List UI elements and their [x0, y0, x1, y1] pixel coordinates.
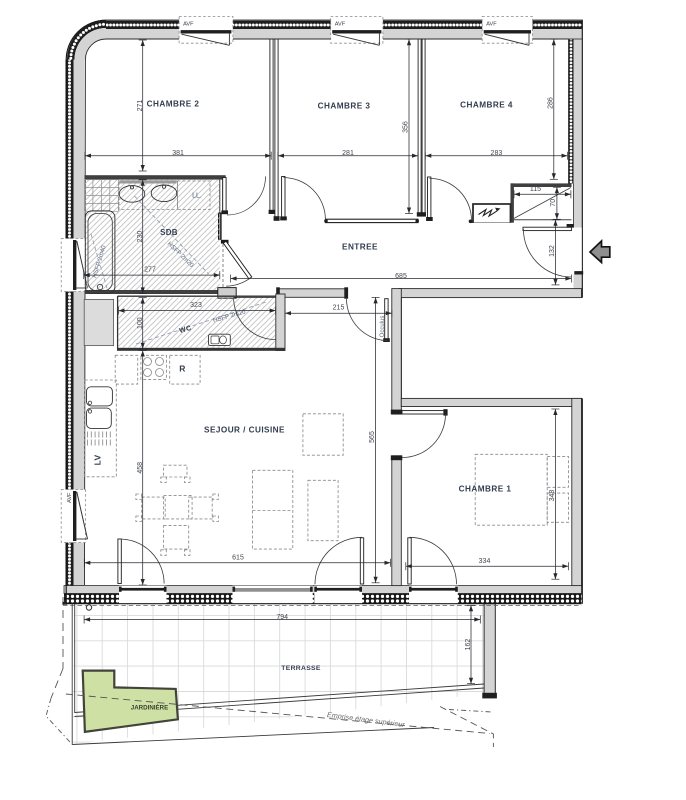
svg-text:LV: LV [93, 455, 103, 466]
svg-text:565: 565 [369, 431, 376, 443]
svg-text:334: 334 [479, 558, 491, 565]
svg-text:AVF: AVF [67, 492, 73, 503]
svg-text:CHAMBRE 1: CHAMBRE 1 [459, 485, 512, 494]
svg-text:271: 271 [137, 100, 144, 112]
svg-text:458: 458 [137, 462, 144, 474]
svg-text:132: 132 [549, 245, 556, 257]
svg-text:615: 615 [232, 554, 244, 561]
svg-text:AVF: AVF [183, 22, 194, 28]
svg-text:Occulus: Occulus [380, 316, 386, 338]
svg-text:283: 283 [491, 150, 503, 157]
svg-text:R: R [179, 364, 185, 374]
svg-text:115: 115 [530, 186, 541, 193]
svg-text:ENTREE: ENTREE [342, 243, 378, 252]
svg-text:LL.: LL. [192, 193, 202, 200]
svg-text:CHAMBRE 2: CHAMBRE 2 [147, 100, 200, 109]
svg-text:348: 348 [549, 490, 556, 502]
svg-text:CHAMBRE 4: CHAMBRE 4 [460, 101, 513, 110]
svg-text:AVF: AVF [486, 22, 497, 28]
svg-text:SEJOUR / CUISINE: SEJOUR / CUISINE [204, 426, 285, 435]
svg-text:70: 70 [550, 199, 557, 207]
svg-text:685: 685 [395, 273, 407, 280]
svg-text:230: 230 [137, 231, 144, 243]
svg-text:794: 794 [276, 614, 288, 621]
svg-text:381: 381 [172, 150, 184, 157]
svg-text:281: 281 [342, 150, 354, 157]
svg-text:215: 215 [333, 304, 345, 311]
svg-text:277: 277 [144, 266, 156, 273]
svg-text:JARDINIÈRE: JARDINIÈRE [131, 704, 168, 712]
svg-text:286: 286 [548, 97, 555, 109]
svg-text:323: 323 [190, 302, 202, 309]
svg-text:CHAMBRE 3: CHAMBRE 3 [318, 102, 371, 111]
svg-text:162: 162 [465, 639, 472, 651]
svg-text:100: 100 [137, 317, 144, 329]
svg-text:TERRASSE: TERRASSE [281, 665, 321, 672]
svg-text:356: 356 [403, 121, 410, 133]
svg-text:SDB: SDB [160, 228, 178, 237]
svg-text:AVF: AVF [335, 22, 346, 28]
